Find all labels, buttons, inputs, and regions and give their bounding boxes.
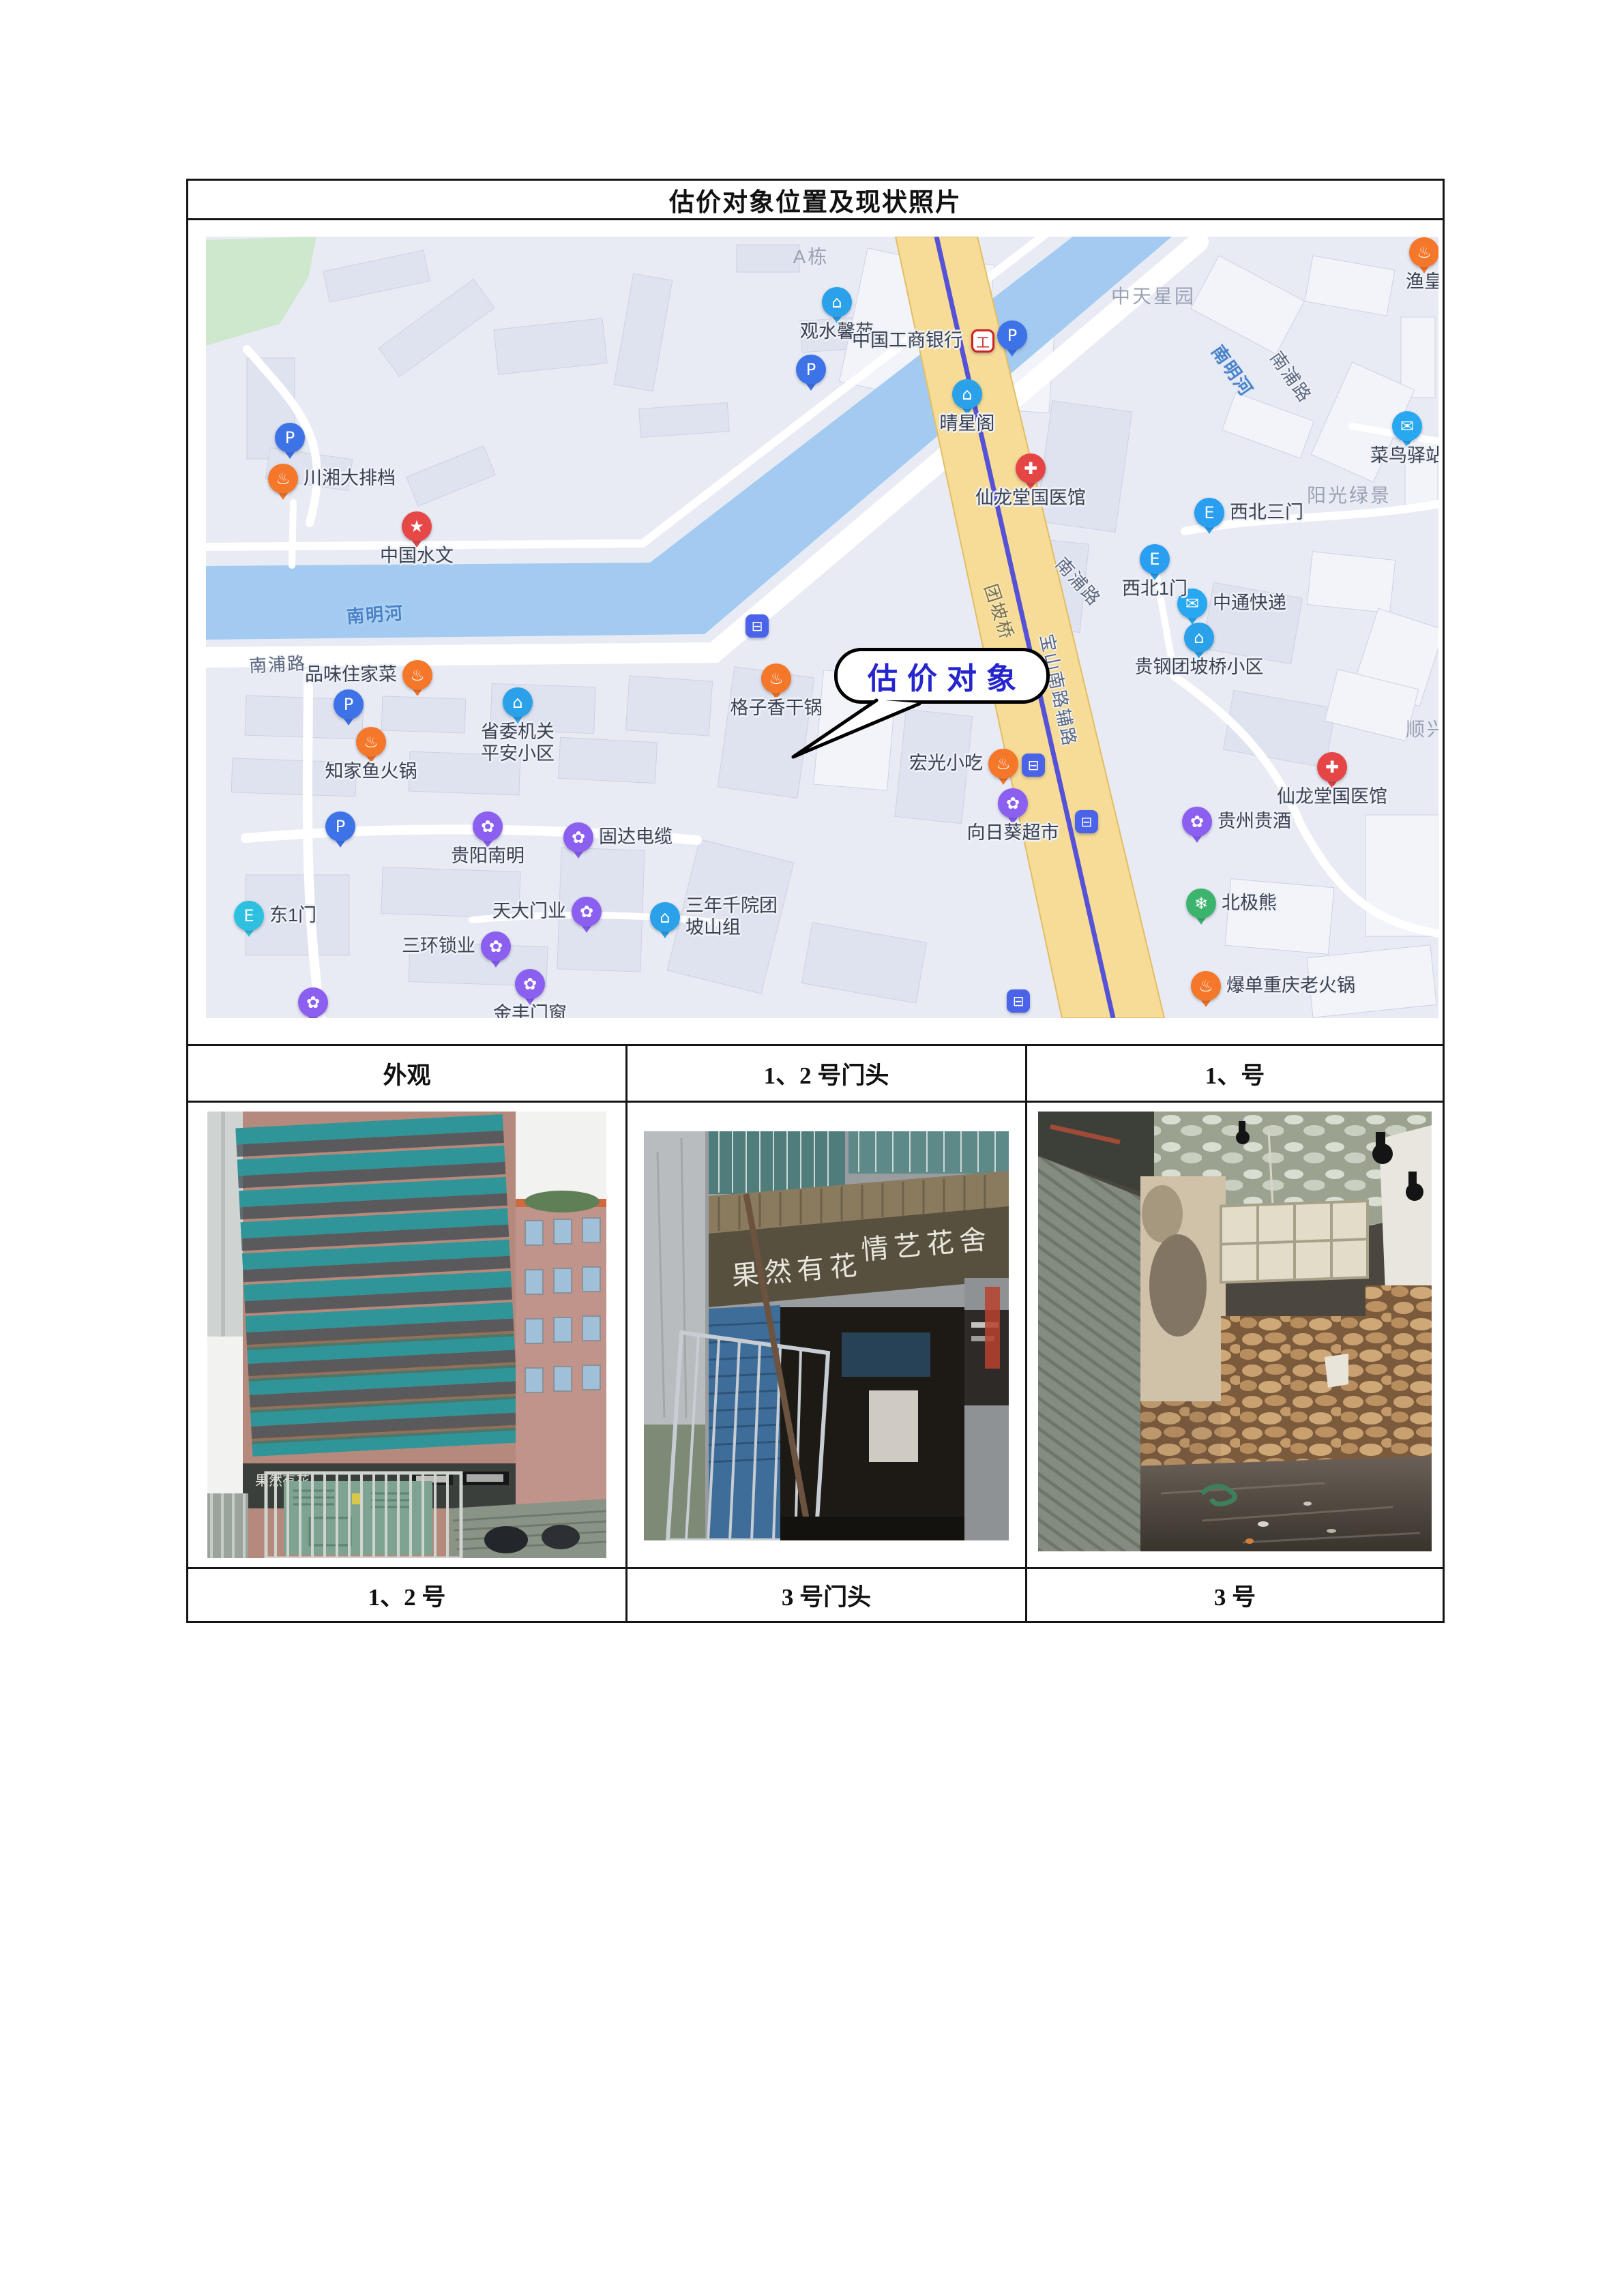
balcony-awnings: [235, 1114, 520, 1457]
poi-zhongguo-shuiwen-label: 中国水文: [380, 546, 454, 567]
poi-sanhuan-suoye-label: 三环锁业: [402, 936, 475, 957]
gate-cyan-icon: E: [234, 901, 264, 931]
table-title-row: 估价对象位置及现状照片: [188, 181, 1443, 220]
poi-chuanxiang-dapaidang-label: 川湘大排档: [304, 468, 396, 490]
poi-gezi-xianggan-guo-label: 格子香干锅: [730, 698, 823, 719]
left-stair-rail: [207, 1493, 248, 1558]
photo-cell-exterior: 果然有花 情艺花舍: [188, 1103, 628, 1567]
callout-bubble: 估价对象: [834, 648, 1050, 704]
poi-zhijiayu-huoguo-label: 知家鱼火锅: [325, 761, 417, 783]
callout-text: 估价对象: [858, 654, 1026, 698]
shop-icon: ✿: [1182, 807, 1212, 837]
bank-icon: 工: [971, 329, 994, 353]
map-row: A栋中天星园阳光绿景顺兴南明河南明河南浦路南浦路南浦路团坡桥宝山南路辅路 P♨川…: [188, 237, 1443, 1046]
header-exterior: 外观: [188, 1046, 628, 1101]
poi-guda-dianlan-label: 固达电缆: [599, 826, 673, 848]
bus-icon: ⊟: [1075, 810, 1098, 833]
concrete-floor: [1134, 1456, 1432, 1551]
parking-icon: P: [796, 355, 826, 385]
white-cabinet: [869, 1390, 918, 1462]
food-icon: ♨: [268, 464, 298, 494]
shop-icon: ✿: [481, 931, 511, 961]
poi-guiyang-nanming-label: 贵阳南明: [451, 846, 525, 867]
stone-wallpaper-right: [1365, 1285, 1432, 1483]
roller-shutter-left: [1038, 1156, 1140, 1551]
orange-debris: [1245, 1538, 1254, 1544]
header-no-1: 1、号: [1027, 1046, 1443, 1101]
poi-xianlongtang-guoyiguan-north-label: 仙龙堂国医馆: [975, 488, 1086, 509]
tcm-icon: ✚: [1317, 752, 1347, 782]
gate-blue-icon: E: [1140, 544, 1170, 574]
food-icon: ♨: [402, 660, 432, 690]
caption-door-3: 3 号门头: [628, 1569, 1027, 1621]
shop-icon: ✿: [572, 897, 602, 927]
residence-icon: ⌂: [1184, 623, 1214, 653]
poi-pinwei-zhujiacai-label: 品味住家菜: [305, 664, 397, 686]
poi-xibei-1-men-label: 西北1门: [1122, 578, 1187, 600]
poi-yuhuang-label: 渔皇: [1406, 271, 1438, 293]
parking-icon: P: [325, 811, 355, 841]
food-icon: ♨: [761, 664, 791, 694]
poi-beijixiong-label: 北极熊: [1222, 893, 1277, 914]
food-icon: ♨: [1409, 237, 1438, 267]
photo-row: 果然有花 情艺花舍: [188, 1103, 1443, 1569]
wall-patch: [1325, 1354, 1348, 1388]
photo-interior-room: [1038, 1112, 1432, 1551]
page-title: 估价对象位置及现状照片: [669, 181, 962, 218]
caption-no-3: 3 号: [1027, 1569, 1443, 1621]
bus-icon: ⊟: [1022, 754, 1045, 777]
poi-xibei-san-men-label: 西北三门: [1230, 502, 1303, 524]
photo-caption-row: 1、2 号 3 号门头 3 号: [188, 1569, 1443, 1621]
residence-icon: ⌂: [952, 379, 982, 409]
photo-cell-interior: [1027, 1103, 1443, 1567]
bus-icon: ⊟: [1007, 989, 1030, 1013]
poi-jinfeng-menchuang-label: 金丰门窗: [493, 1003, 567, 1018]
photo-cell-storefront: 果然有花 情艺花舍: [628, 1103, 1027, 1567]
poi-guigang-tuanpoqiao-xiaoqu-label: 贵钢团坡桥小区: [1135, 657, 1264, 679]
parking-icon: P: [334, 689, 364, 719]
poi-xianlongtang-guoyiguan-south-label: 仙龙堂国医馆: [1277, 786, 1387, 808]
poi-dong-1-men-label: 东1门: [269, 905, 316, 927]
residence-icon: ⌂: [822, 287, 852, 317]
food-icon: ♨: [988, 749, 1018, 779]
location-map[interactable]: A栋中天星园阳光绿景顺兴南明河南明河南浦路南浦路南浦路团坡桥宝山南路辅路 P♨川…: [206, 237, 1438, 1018]
shop-icon: ✿: [515, 969, 545, 999]
poi-hongguang-xiaochi-label: 宏光小吃: [909, 753, 983, 775]
red-banner: [985, 1287, 1000, 1369]
food-icon: ♨: [1191, 971, 1221, 1001]
poi-guizhou-guijiu-label: 贵州贵酒: [1217, 811, 1291, 833]
poi-tianda-menye-label: 天大门业: [492, 901, 566, 923]
caption-no-1-2: 1、2 号: [188, 1569, 628, 1621]
poi-cainiao-yizhan-label: 菜鸟驿站: [1370, 445, 1438, 467]
rooftop-plants: [525, 1191, 600, 1212]
shop-icon: ✿: [473, 811, 503, 841]
poi-sannian-qianyuan-tuanposhanzu-label: 三年千院团 坡山组: [685, 895, 778, 939]
blue-shutter-glow: [842, 1332, 930, 1377]
poi-qingxingge-label: 晴星阁: [940, 413, 995, 435]
poi-shengwei-jiguan-pingan-label: 省委机关 平安小区: [481, 721, 555, 765]
gate-blue-icon: E: [1194, 498, 1224, 528]
parking-icon: P: [997, 320, 1027, 351]
photo-exterior-building: 果然有花 情艺花舍: [207, 1112, 606, 1558]
residence-icon: ⌂: [650, 902, 680, 932]
upper-window-bars: [709, 1131, 845, 1194]
header-door-1-2: 1、2 号门头: [628, 1046, 1027, 1101]
star-icon: ★: [402, 511, 432, 541]
map-markers: P♨川湘大排档★中国水文♨品味住家菜P♨知家鱼火锅⌂省委机关 平安小区P✿贵阳南…: [206, 237, 1438, 1018]
motorbike: [484, 1526, 528, 1553]
parking-icon: P: [275, 423, 305, 453]
upper-window-bars: [848, 1131, 1009, 1174]
poi-xiangrikui-chaoshi-label: 向日葵超市: [967, 822, 1059, 844]
food-icon: ♨: [356, 727, 386, 757]
green-icon: ❄: [1186, 889, 1216, 919]
motorbike: [542, 1525, 580, 1549]
poi-icbc-bank-label: 中国工商银行: [852, 330, 962, 352]
shop-icon: ✿: [298, 987, 328, 1017]
appraisal-photo-table: 估价对象位置及现状照片: [186, 179, 1445, 1623]
tcm-icon: ✚: [1016, 453, 1046, 483]
photo-storefront-door: 果然有花 情艺花舍: [644, 1131, 1009, 1540]
bus-icon: ⊟: [745, 614, 769, 638]
poi-baodan-chongqing-laohuoguo-label: 爆单重庆老火锅: [1226, 975, 1355, 997]
poi-zhongtong-kuaidi-label: 中通快递: [1213, 593, 1286, 614]
shop-icon: ✿: [563, 822, 593, 852]
residence-icon: ⌂: [503, 687, 533, 717]
shelf-cubbies: [1221, 1201, 1368, 1283]
shop-icon: ✿: [998, 788, 1028, 818]
courier-icon: ✉: [1392, 411, 1422, 441]
photo-header-row: 外观 1、2 号门头 1、号: [188, 1046, 1443, 1103]
